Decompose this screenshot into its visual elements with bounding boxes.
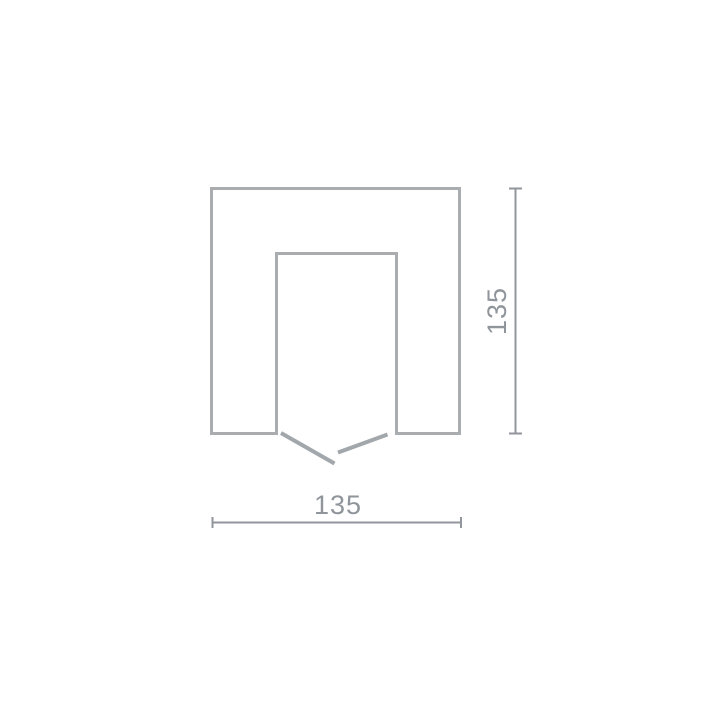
break-mark-left [281, 433, 335, 464]
horizontal-dimension-label: 135 [314, 490, 362, 520]
vertical-dimension: 135 [482, 189, 522, 434]
diagram-svg: 135 135 [0, 0, 720, 720]
profile-outline [212, 189, 460, 434]
dimension-diagram: 135 135 [0, 0, 720, 720]
horizontal-dimension: 135 [212, 490, 462, 528]
break-mark-right [338, 435, 388, 453]
vertical-dimension-label: 135 [482, 287, 512, 335]
